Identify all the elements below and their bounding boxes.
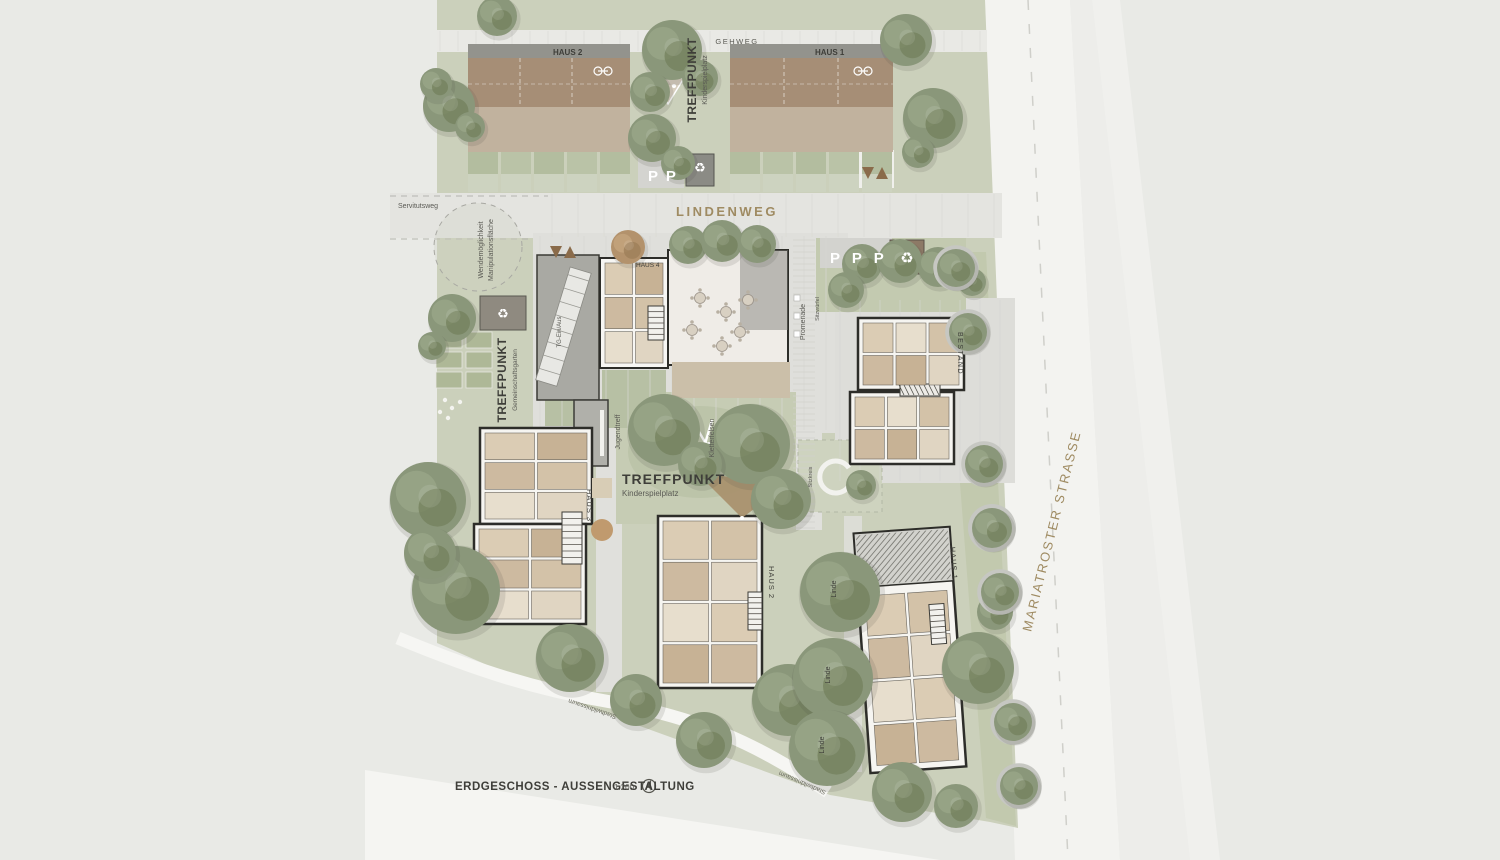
label-lindenweg: LINDENWEG xyxy=(676,204,778,219)
label-treffpunkt-mitte: TREFFPUNKT xyxy=(622,471,725,487)
label-linde: Linde xyxy=(831,580,838,597)
label-treffpunkt-west-sub: Gemeinschaftsgarten xyxy=(512,349,519,411)
label-haus4: HAUS 4 xyxy=(636,262,660,269)
tree xyxy=(941,632,1019,710)
wood-deck xyxy=(672,362,790,398)
label-treffpunkt-mitte-sub: Kinderspielplatz xyxy=(622,489,678,498)
label-treffpunkt-west: TREFFPUNKT xyxy=(495,337,509,422)
label-promenade: Promenade xyxy=(800,304,807,340)
building-haus2-nord xyxy=(468,44,630,152)
label-haus3: HAUS 3 xyxy=(585,489,594,522)
site-plan-canvas: GEHWEG HAUS 2 HAUS 1 TREFFPUNKT Kindersp… xyxy=(0,0,1500,860)
stair-icon xyxy=(748,592,762,630)
tree xyxy=(535,624,608,698)
label-kletterfelsen: Kletterfelsen xyxy=(709,418,716,457)
label-servitutsweg: Servitutsweg xyxy=(398,203,438,210)
title-scale: 1:200 xyxy=(614,783,635,792)
label-jugendtreff: Jugendtreff xyxy=(615,415,622,450)
recycle-icon: ♻ xyxy=(900,250,913,267)
label-bestand: BESTAND xyxy=(956,332,963,375)
label-wendemoeglichkeit: Wendemöglichkeit xyxy=(478,221,485,278)
stair-icon xyxy=(648,306,664,340)
label-sitzkreis: Sitzkreis xyxy=(808,466,814,487)
label-tg-ein-aus: TG-Ein/Aus xyxy=(557,316,563,347)
stair-icon xyxy=(929,604,947,645)
label-haus2-nord: HAUS 2 xyxy=(553,48,583,57)
label-parking-ost: P P P xyxy=(830,250,888,267)
building-haus1-nord xyxy=(730,44,893,152)
label-haus1-nord: HAUS 1 xyxy=(815,48,845,57)
recycle-icon: ♻ xyxy=(694,160,706,175)
label-gehweg: GEHWEG xyxy=(715,37,758,46)
recycle-icon: ♻ xyxy=(497,306,509,321)
label-parking-nord: P P xyxy=(648,168,678,185)
label-sitzwuerfel: Sitzwürfel xyxy=(815,297,821,321)
label-haus2-sued: HAUS 2 xyxy=(767,566,776,599)
label-linde: Linde xyxy=(825,666,832,683)
label-manipulationsflaeche: Manipulationsfläche xyxy=(488,219,495,281)
label-linde: Linde xyxy=(819,736,826,753)
site-plan: GEHWEG HAUS 2 HAUS 1 TREFFPUNKT Kindersp… xyxy=(0,0,1500,860)
stair-icon xyxy=(562,512,582,564)
label-treffpunkt-nord-sub: Kinderspielplatz xyxy=(702,55,709,105)
label-treffpunkt-nord: TREFFPUNKT xyxy=(685,37,699,122)
tree xyxy=(799,552,885,638)
seat-cube xyxy=(794,295,800,301)
title-erdgeschoss: ERDGESCHOSS - AUSSENGESTALTUNG xyxy=(455,781,695,793)
